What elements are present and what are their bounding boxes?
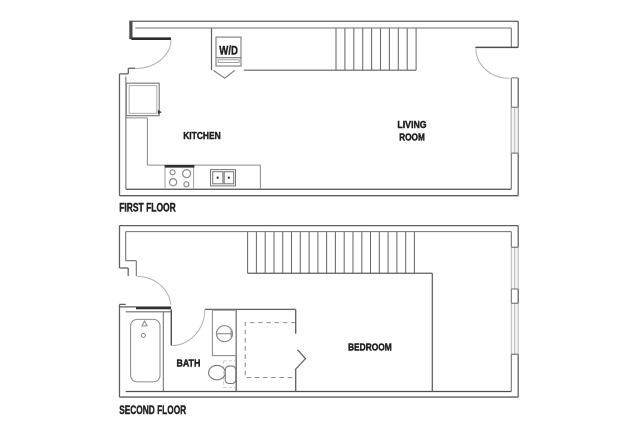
svg-text:KITCHEN: KITCHEN: [183, 131, 221, 142]
svg-text:BEDROOM: BEDROOM: [348, 343, 392, 354]
svg-text:W/D: W/D: [219, 44, 238, 58]
svg-text:SECOND FLOOR: SECOND FLOOR: [119, 403, 186, 417]
svg-text:BATH: BATH: [176, 358, 200, 369]
svg-text:LIVING: LIVING: [397, 120, 426, 131]
svg-text:ROOM: ROOM: [399, 133, 425, 144]
svg-text:FIRST FLOOR: FIRST FLOOR: [119, 201, 176, 215]
